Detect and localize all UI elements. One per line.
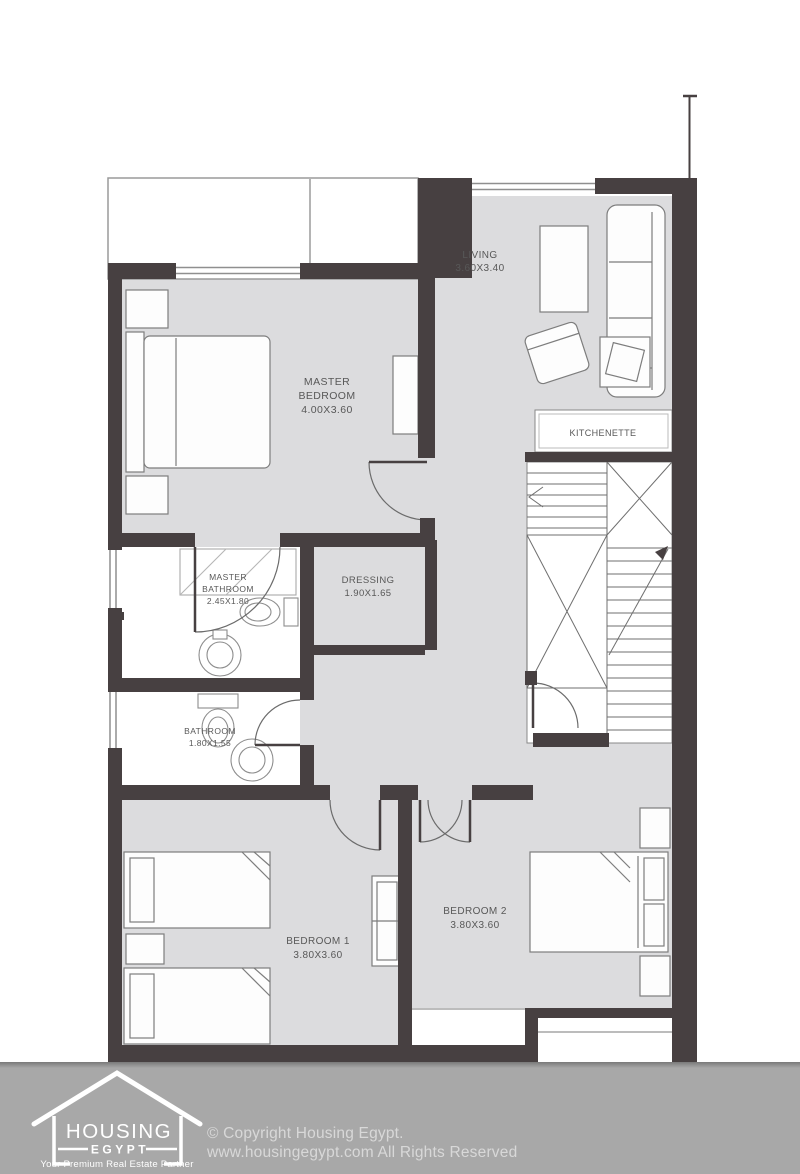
rear-balcony [538,1018,672,1062]
logo-tagline: Your Premium Real Estate Partner [40,1159,194,1170]
living-dims: 3.60X3.40 [455,263,504,274]
toilet-tank [284,598,298,626]
pillow [644,858,664,900]
copyright-line-2: www.housingegypt.com All Rights Reserved [207,1143,517,1162]
logo-name: HOUSING [66,1120,172,1143]
housing-egypt-logo: HOUSING EGYPT Your Premium Real Estate P… [12,1064,232,1174]
bedroom1-dims: 3.80X3.60 [293,950,342,961]
bedroom2-dims: 3.80X3.60 [450,920,499,931]
light-shaft [412,1008,525,1045]
basin-tap [213,630,227,639]
nightstand [126,476,168,514]
bathroom-dims: 1.80X1.55 [189,738,231,748]
footer-bar: HOUSING EGYPT Your Premium Real Estate P… [0,1062,800,1174]
floor-plan-page: LIVING 3.60X3.40 MASTER BEDROOM 4.00X3.6… [0,0,800,1174]
master-bathroom-label-1: MASTER [209,572,247,582]
pillow [130,974,154,1038]
master-bedroom-label-2: BEDROOM [298,390,355,402]
logo-roof-icon [34,1073,200,1124]
kitchenette-label: KITCHENETTE [570,428,637,438]
washbasin [199,634,241,676]
bathroom-label: BATHROOM [184,726,236,736]
staircase-area [527,462,672,743]
master-bedroom-dims: 4.00X3.60 [301,404,352,416]
nightstand [126,934,164,964]
wall-niche [393,356,418,434]
coffee-table [540,226,588,312]
floor-plan-drawing: LIVING 3.60X3.40 MASTER BEDROOM 4.00X3.6… [0,0,800,1062]
copyright-notice: © Copyright Housing Egypt. www.housingeg… [207,1124,517,1162]
pillow [644,904,664,946]
copyright-line-1: © Copyright Housing Egypt. [207,1124,517,1143]
bedroom1-label: BEDROOM 1 [286,936,350,947]
nightstand [640,956,670,996]
dressing-label: DRESSING [342,575,395,586]
toilet-tank [198,694,238,708]
bedroom2-label: BEDROOM 2 [443,906,507,917]
nightstand [640,808,670,848]
nightstand [126,290,168,328]
dressing-dims: 1.90X1.65 [345,588,392,599]
master-bathroom-dims: 2.45X1.80 [207,596,249,606]
bed-headboard [126,332,144,472]
pillow [130,858,154,922]
master-bathroom-label-2: BATHROOM [202,584,254,594]
logo-sub: EGYPT [91,1143,149,1157]
master-bedroom-label-1: MASTER [304,376,350,388]
double-bed [144,336,270,468]
living-label: LIVING [462,250,497,261]
